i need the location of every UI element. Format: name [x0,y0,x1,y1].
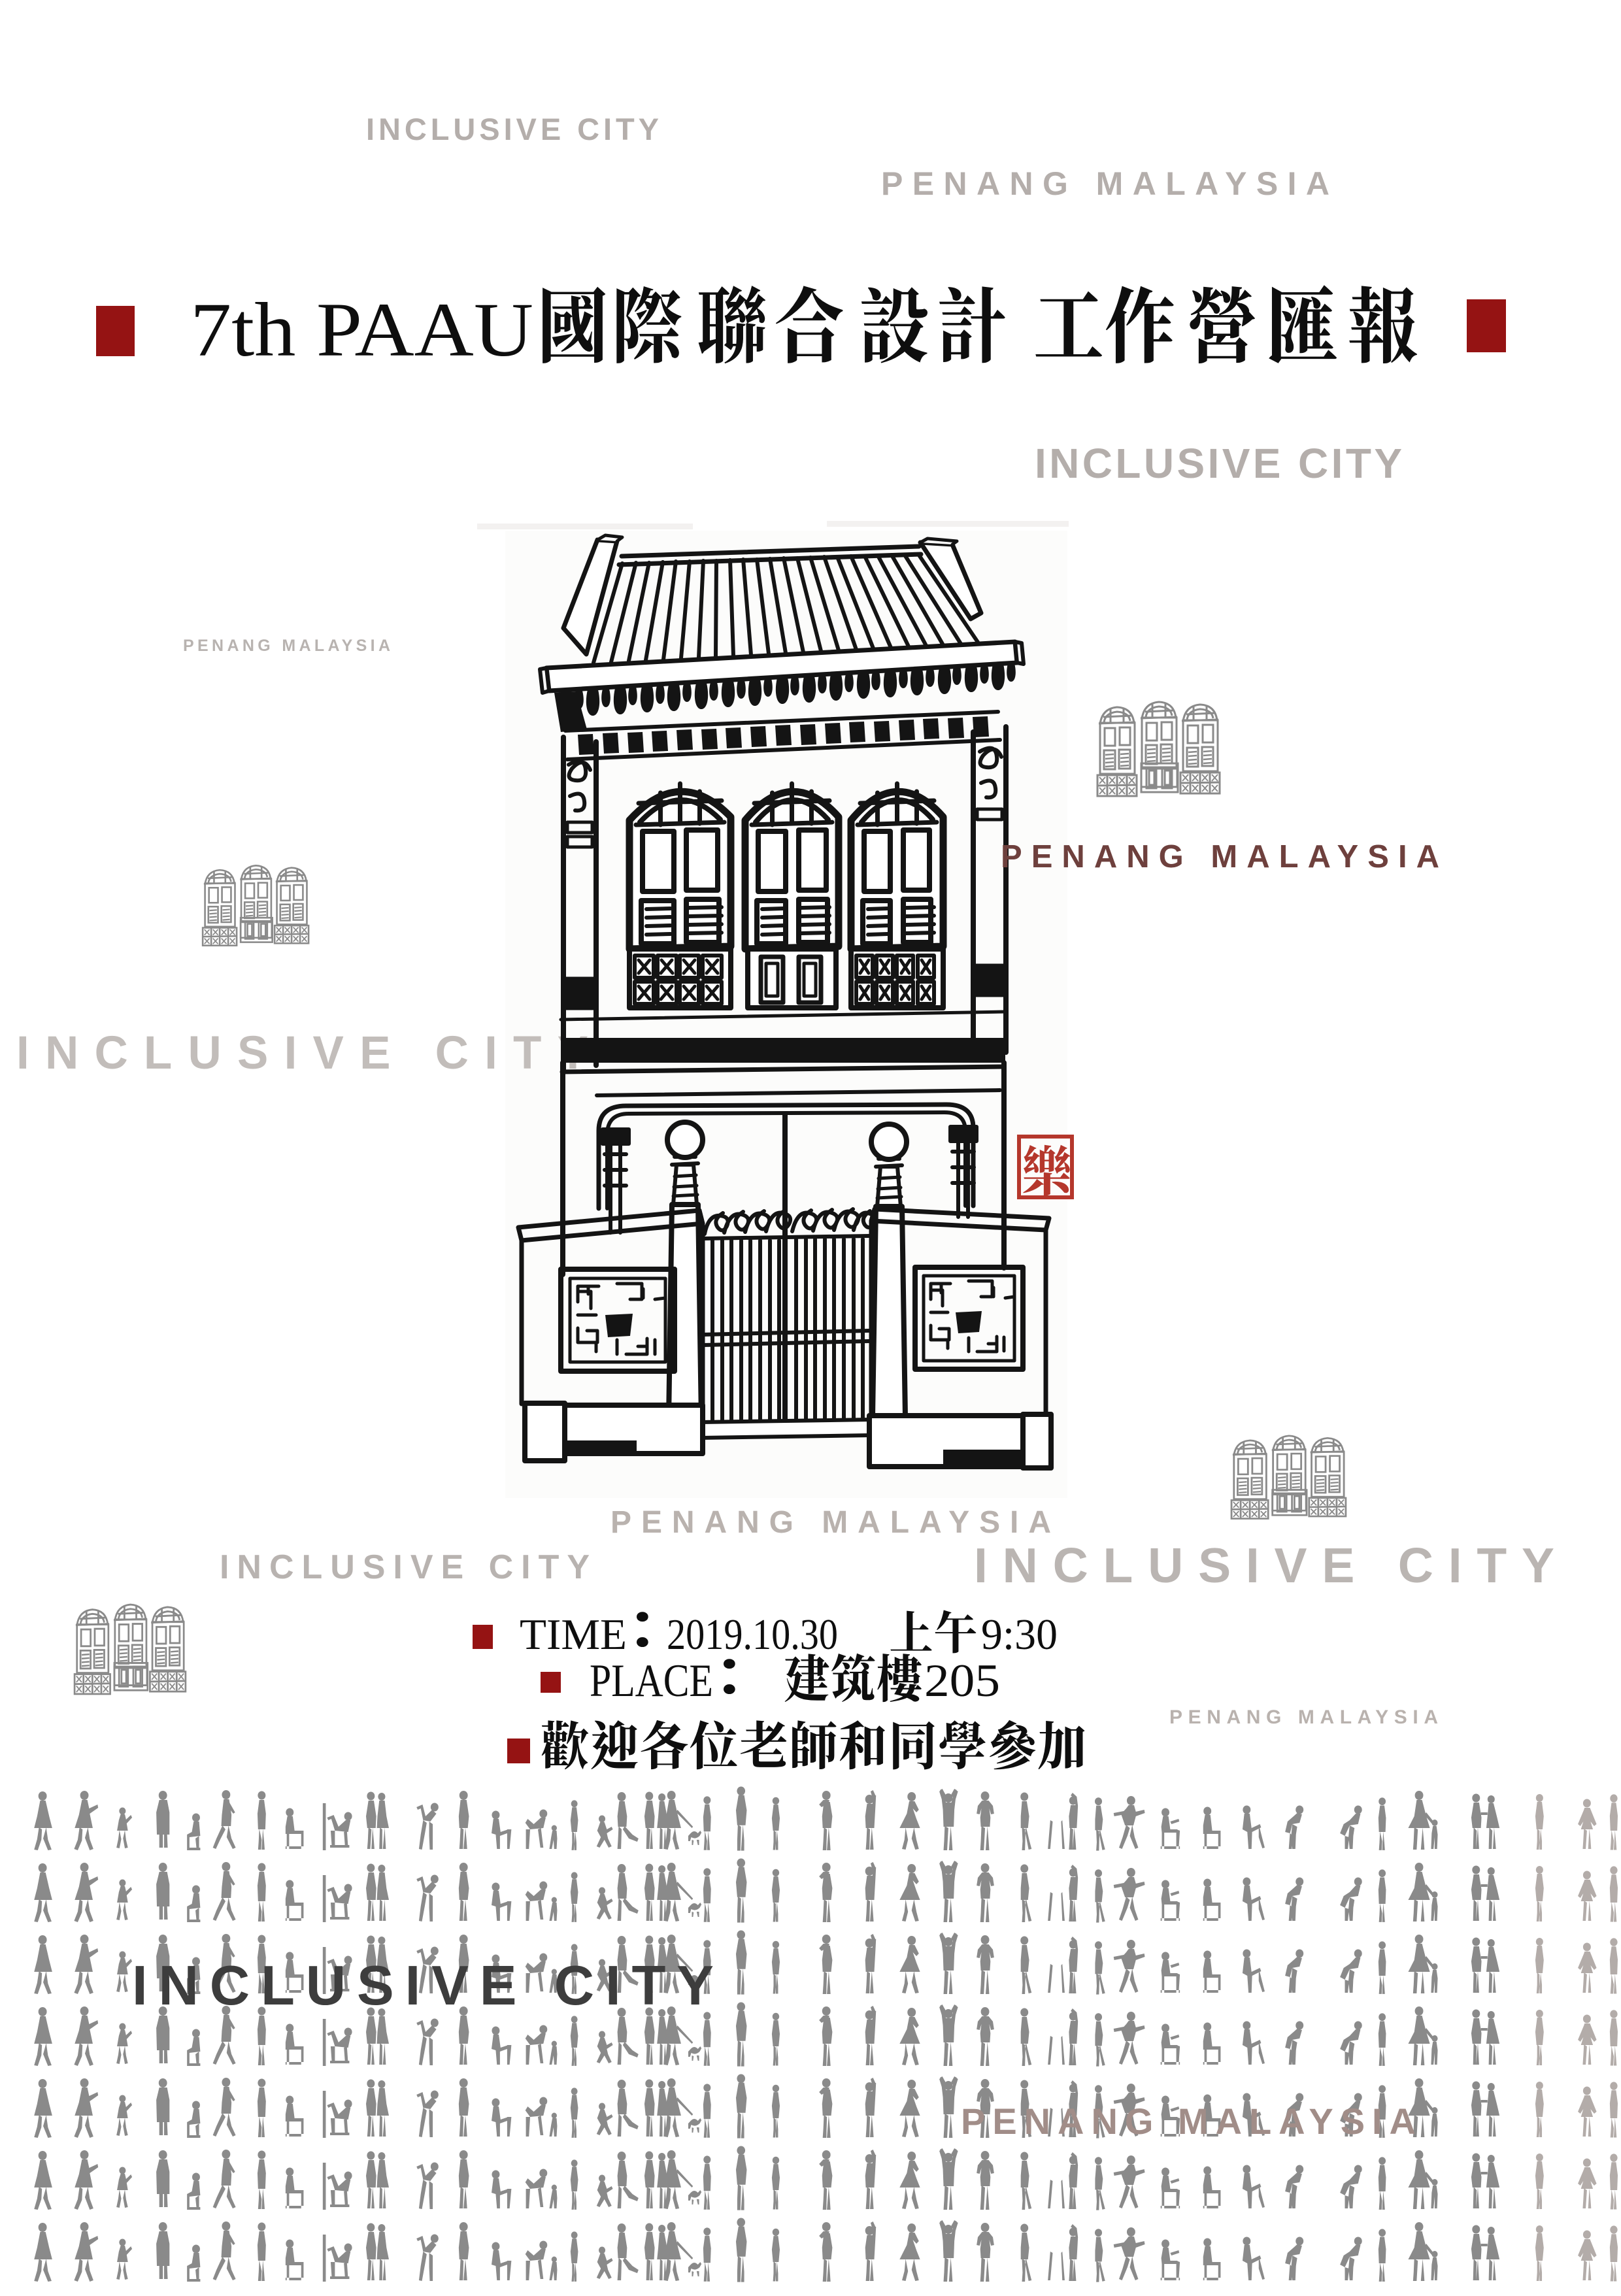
svg-text:PLACE: PLACE [590,1655,713,1706]
svg-text:7th PAAU: 7th PAAU [190,287,533,373]
svg-text:PENANG MALAYSIA: PENANG MALAYSIA [1169,1706,1438,1728]
svg-text:2019.10.30: 2019.10.30 [667,1610,838,1659]
svg-text:INCLUSIVE CITY: INCLUSIVE CITY [1035,440,1402,487]
svg-text:TIME: TIME [520,1610,627,1659]
svg-text:PENANG MALAYSIA: PENANG MALAYSIA [1001,839,1439,874]
svg-text:PENANG MALAYSIA: PENANG MALAYSIA [961,2101,1416,2142]
svg-text:PENANG MALAYSIA: PENANG MALAYSIA [881,165,1329,202]
svg-text:205: 205 [924,1655,1000,1706]
svg-text:9:30: 9:30 [981,1610,1058,1659]
svg-text:PENANG MALAYSIA: PENANG MALAYSIA [183,637,390,655]
svg-text:PENANG MALAYSIA: PENANG MALAYSIA [610,1505,1051,1540]
